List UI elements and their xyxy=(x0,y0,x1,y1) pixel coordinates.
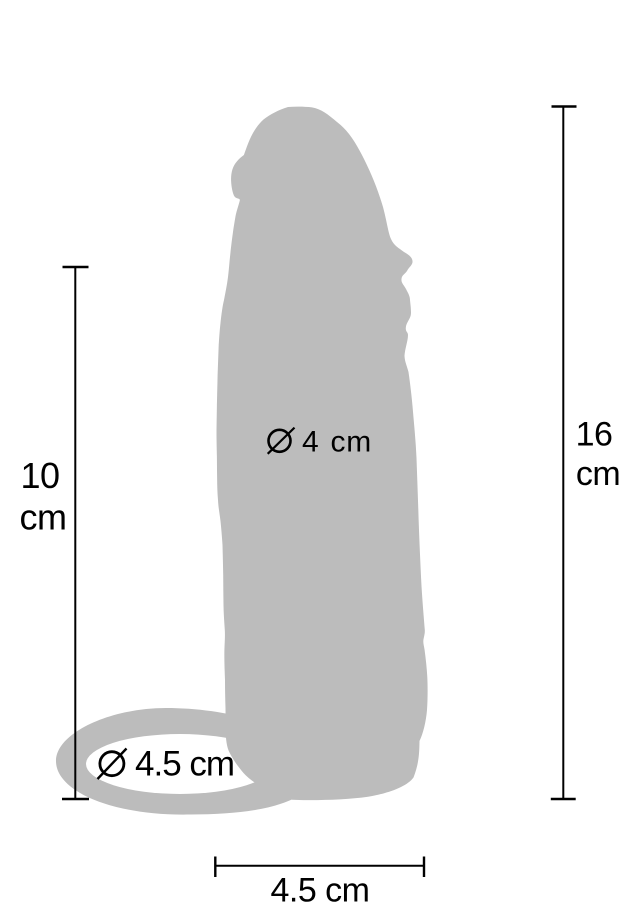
svg-text:cm: cm xyxy=(331,426,373,459)
svg-text:4.5 cm: 4.5 cm xyxy=(135,745,234,784)
svg-text:cm: cm xyxy=(20,497,67,538)
svg-text:cm: cm xyxy=(576,455,620,493)
svg-text:4: 4 xyxy=(302,426,319,459)
svg-text:10: 10 xyxy=(20,455,59,496)
svg-text:4.5 cm: 4.5 cm xyxy=(270,872,369,907)
svg-text:16: 16 xyxy=(576,416,613,454)
